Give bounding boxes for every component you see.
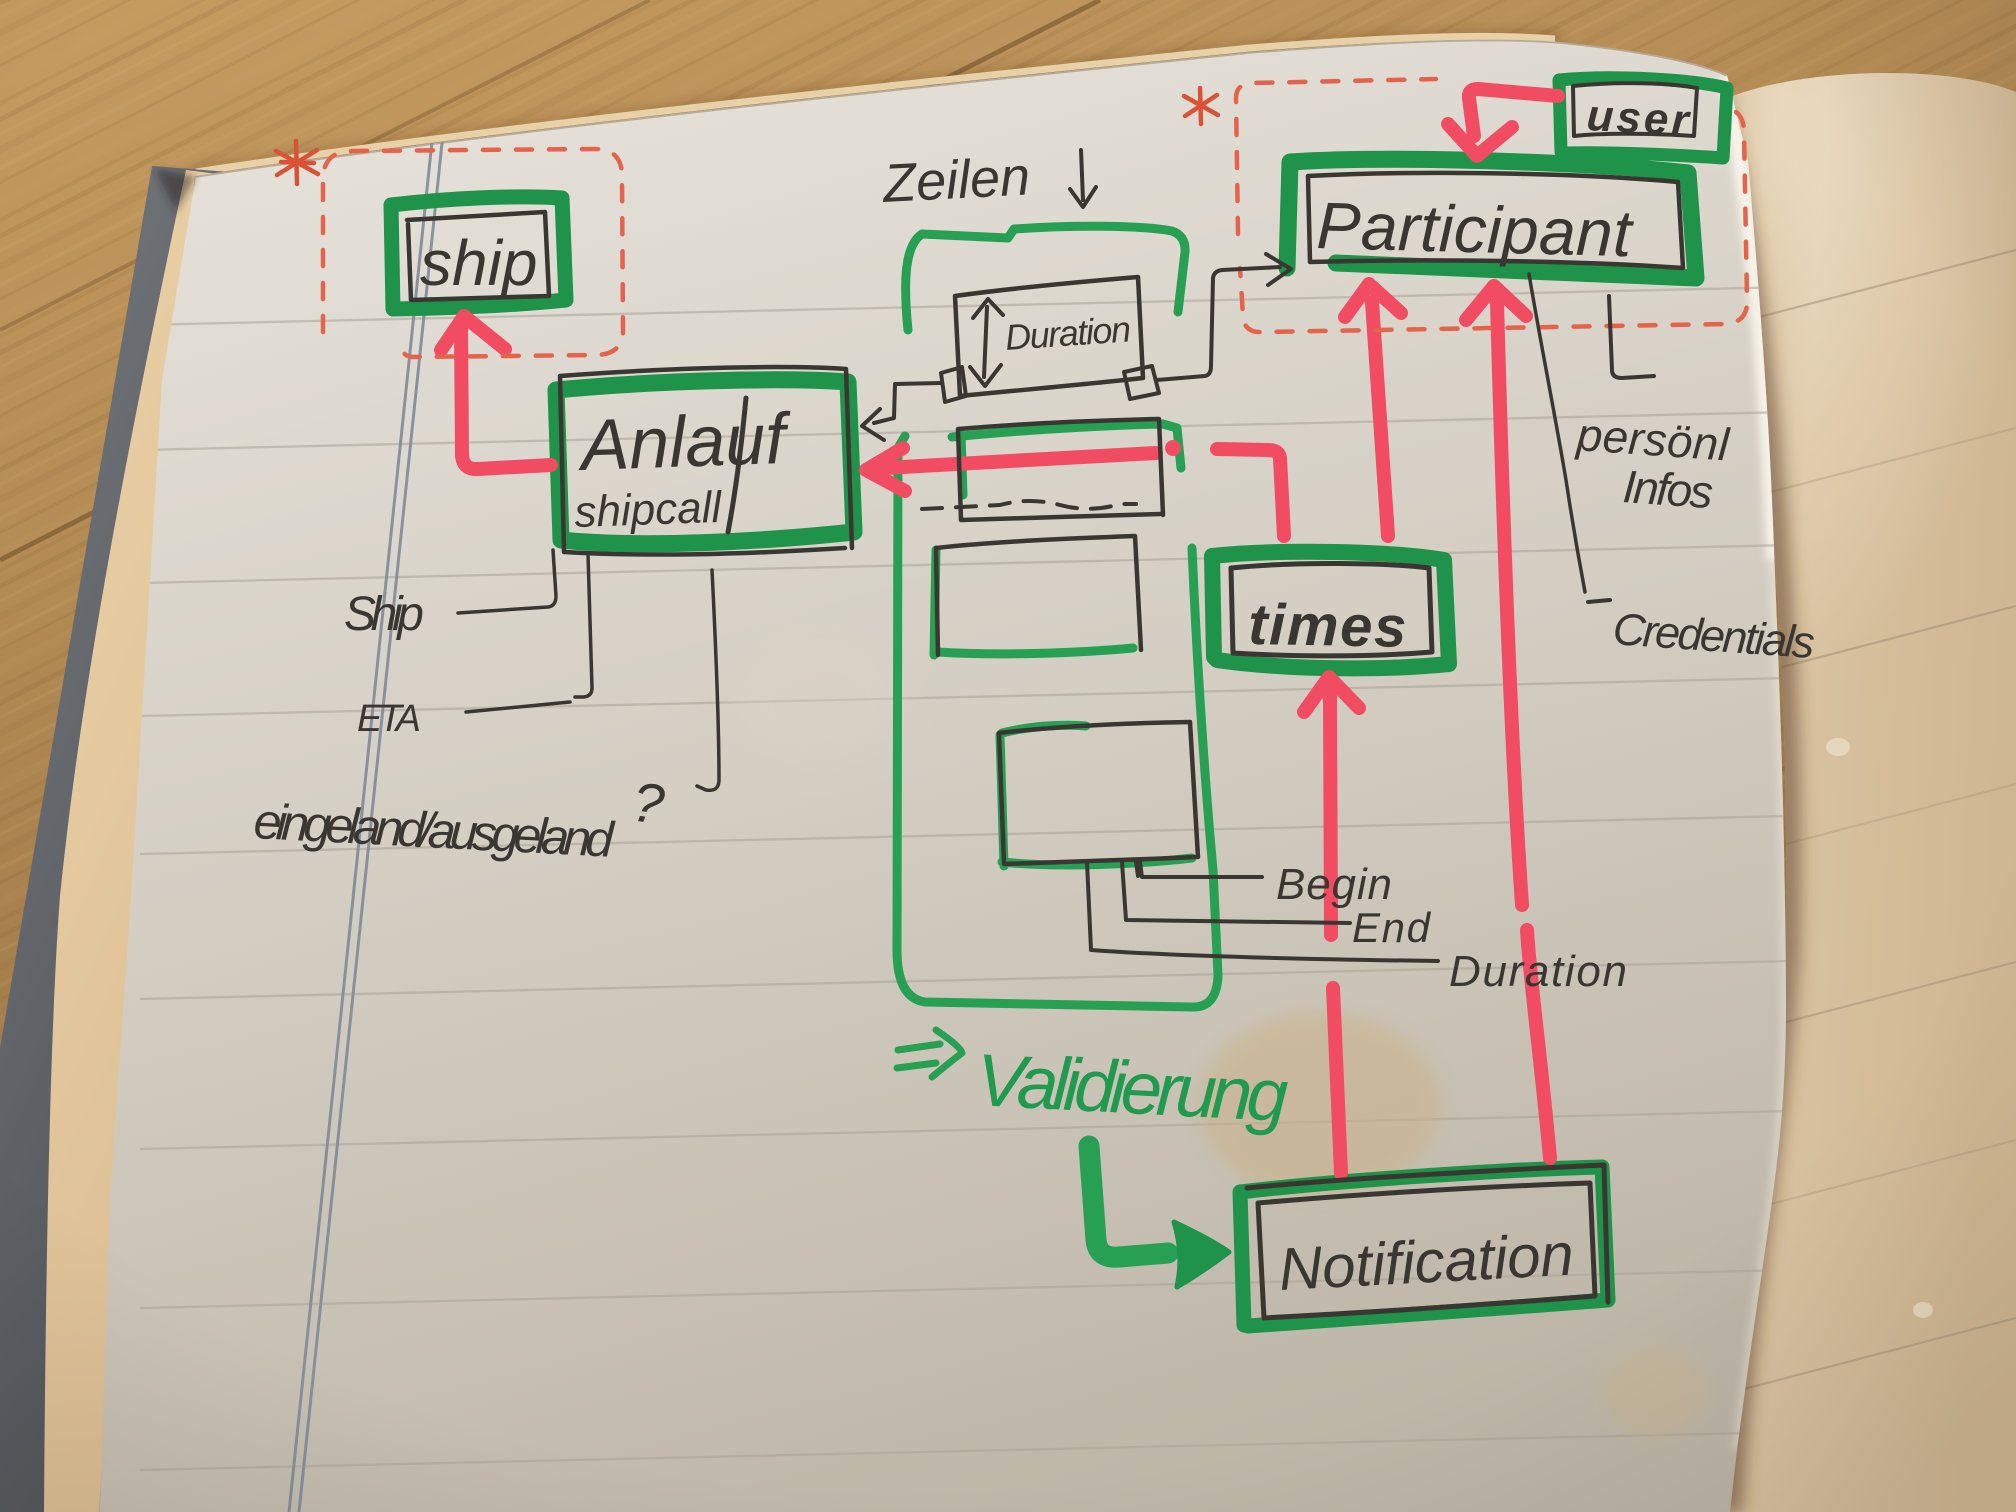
svg-text:Duration: Duration [1449,947,1627,996]
svg-text:Validierung: Validierung [974,1038,1290,1137]
svg-text:Anlauf: Anlauf [576,399,794,486]
svg-text:Ship: Ship [344,588,424,641]
svg-text:user: user [1585,91,1692,145]
svg-text:Begin: Begin [1276,860,1392,909]
svg-text:Participant: Participant [1316,188,1635,270]
svg-text:ship: ship [420,227,537,299]
svg-text:ETA: ETA [357,698,421,740]
svg-text:Infos: Infos [1621,460,1714,518]
svg-text:Duration: Duration [1004,308,1133,358]
svg-text:End: End [1352,904,1432,951]
svg-text:times: times [1248,592,1407,660]
svg-text:shipcall: shipcall [574,483,724,537]
svg-text:Zeilen: Zeilen [879,146,1031,214]
